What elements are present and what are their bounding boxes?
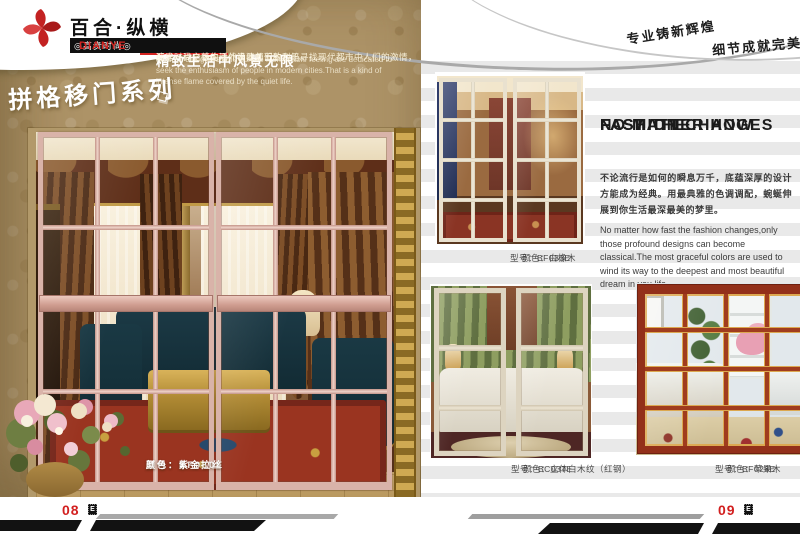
- door-rail: [645, 366, 800, 372]
- door-glass: [521, 293, 583, 451]
- door-handle-bar: [217, 295, 391, 312]
- product-color: 颜色：立体白木纹（红钢）: [523, 463, 631, 475]
- door-rail: [443, 158, 503, 162]
- wallpaper-edge: [416, 128, 420, 497]
- ornate-gold-border: [394, 128, 416, 497]
- door-rail: [517, 198, 577, 202]
- brand-name: 百合·纵横: [70, 13, 172, 40]
- footer-black-bar-right2: [712, 523, 800, 534]
- door-rail: [221, 225, 387, 230]
- door-rail: [521, 345, 583, 351]
- footer-gray-stripe-left: [96, 514, 339, 519]
- product-photo-bf028e: [636, 283, 800, 455]
- card1-door-panel-left: [439, 78, 507, 242]
- main-showroom-photo: 型号：BF030E 颜色：紫金拉丝: [28, 128, 420, 497]
- footer-black-bar-left: [0, 520, 82, 531]
- product-photo-bf033e: [435, 72, 585, 248]
- door-rail: [645, 405, 800, 411]
- door-rail: [439, 405, 501, 411]
- door-rail: [443, 118, 503, 122]
- main-product-color: 颜色：紫金拉丝: [146, 458, 223, 473]
- page-letter: E: [744, 504, 753, 515]
- right-body-cn: 不论流行是如何的瞬息万千，底蕴深厚的设计方能成为经典。用最典雅的色调调配，蜿蜒伸…: [600, 170, 792, 219]
- sliding-door-right-panel: [216, 132, 392, 490]
- door-rail: [43, 389, 209, 394]
- door-rail: [443, 198, 503, 202]
- door-handle-bar: [39, 295, 213, 312]
- right-heading-line3: FASHION CHANGES: [600, 115, 774, 137]
- page-number-right: 09: [718, 502, 736, 518]
- footer-black-bar-left2: [90, 520, 266, 531]
- right-body-en: No matter how fast the fashion changes,o…: [600, 224, 792, 292]
- card3-applewood-door-frame: [638, 285, 800, 453]
- door-rail: [439, 345, 501, 351]
- card1-door-panel-right: [513, 78, 581, 242]
- door-glass: [439, 293, 501, 451]
- door-rail: [517, 118, 577, 122]
- catalog-spread: 百合·纵横 ◎高贵时尚◎ DIANYE 专业铸新辉煌 细节成就完美 拼格移门系列…: [0, 0, 800, 546]
- page-letter: E: [88, 504, 97, 515]
- footer-gray-stripe-right: [468, 514, 705, 519]
- brand-name-en: DIANYE: [79, 40, 127, 52]
- intro-en-text: Modern designers who pursue fashionable …: [156, 54, 394, 88]
- door-rail: [521, 405, 583, 411]
- brand-logo-icon: [22, 7, 62, 49]
- card2-door-panel-right: [516, 288, 588, 456]
- product-color: 颜色：苹果木: [727, 463, 781, 475]
- footer-black-bar-right: [538, 523, 704, 534]
- page-number-left: 08: [62, 502, 80, 518]
- door-rail: [221, 389, 387, 394]
- sliding-door-left-panel: [38, 132, 214, 490]
- door-rail: [517, 158, 577, 162]
- product-color: 颜色：白橡木: [522, 252, 576, 264]
- product-photo-bc037e: [430, 284, 592, 460]
- door-rail: [645, 327, 800, 333]
- card2-door-panel-left: [434, 288, 506, 456]
- door-rail: [43, 225, 209, 230]
